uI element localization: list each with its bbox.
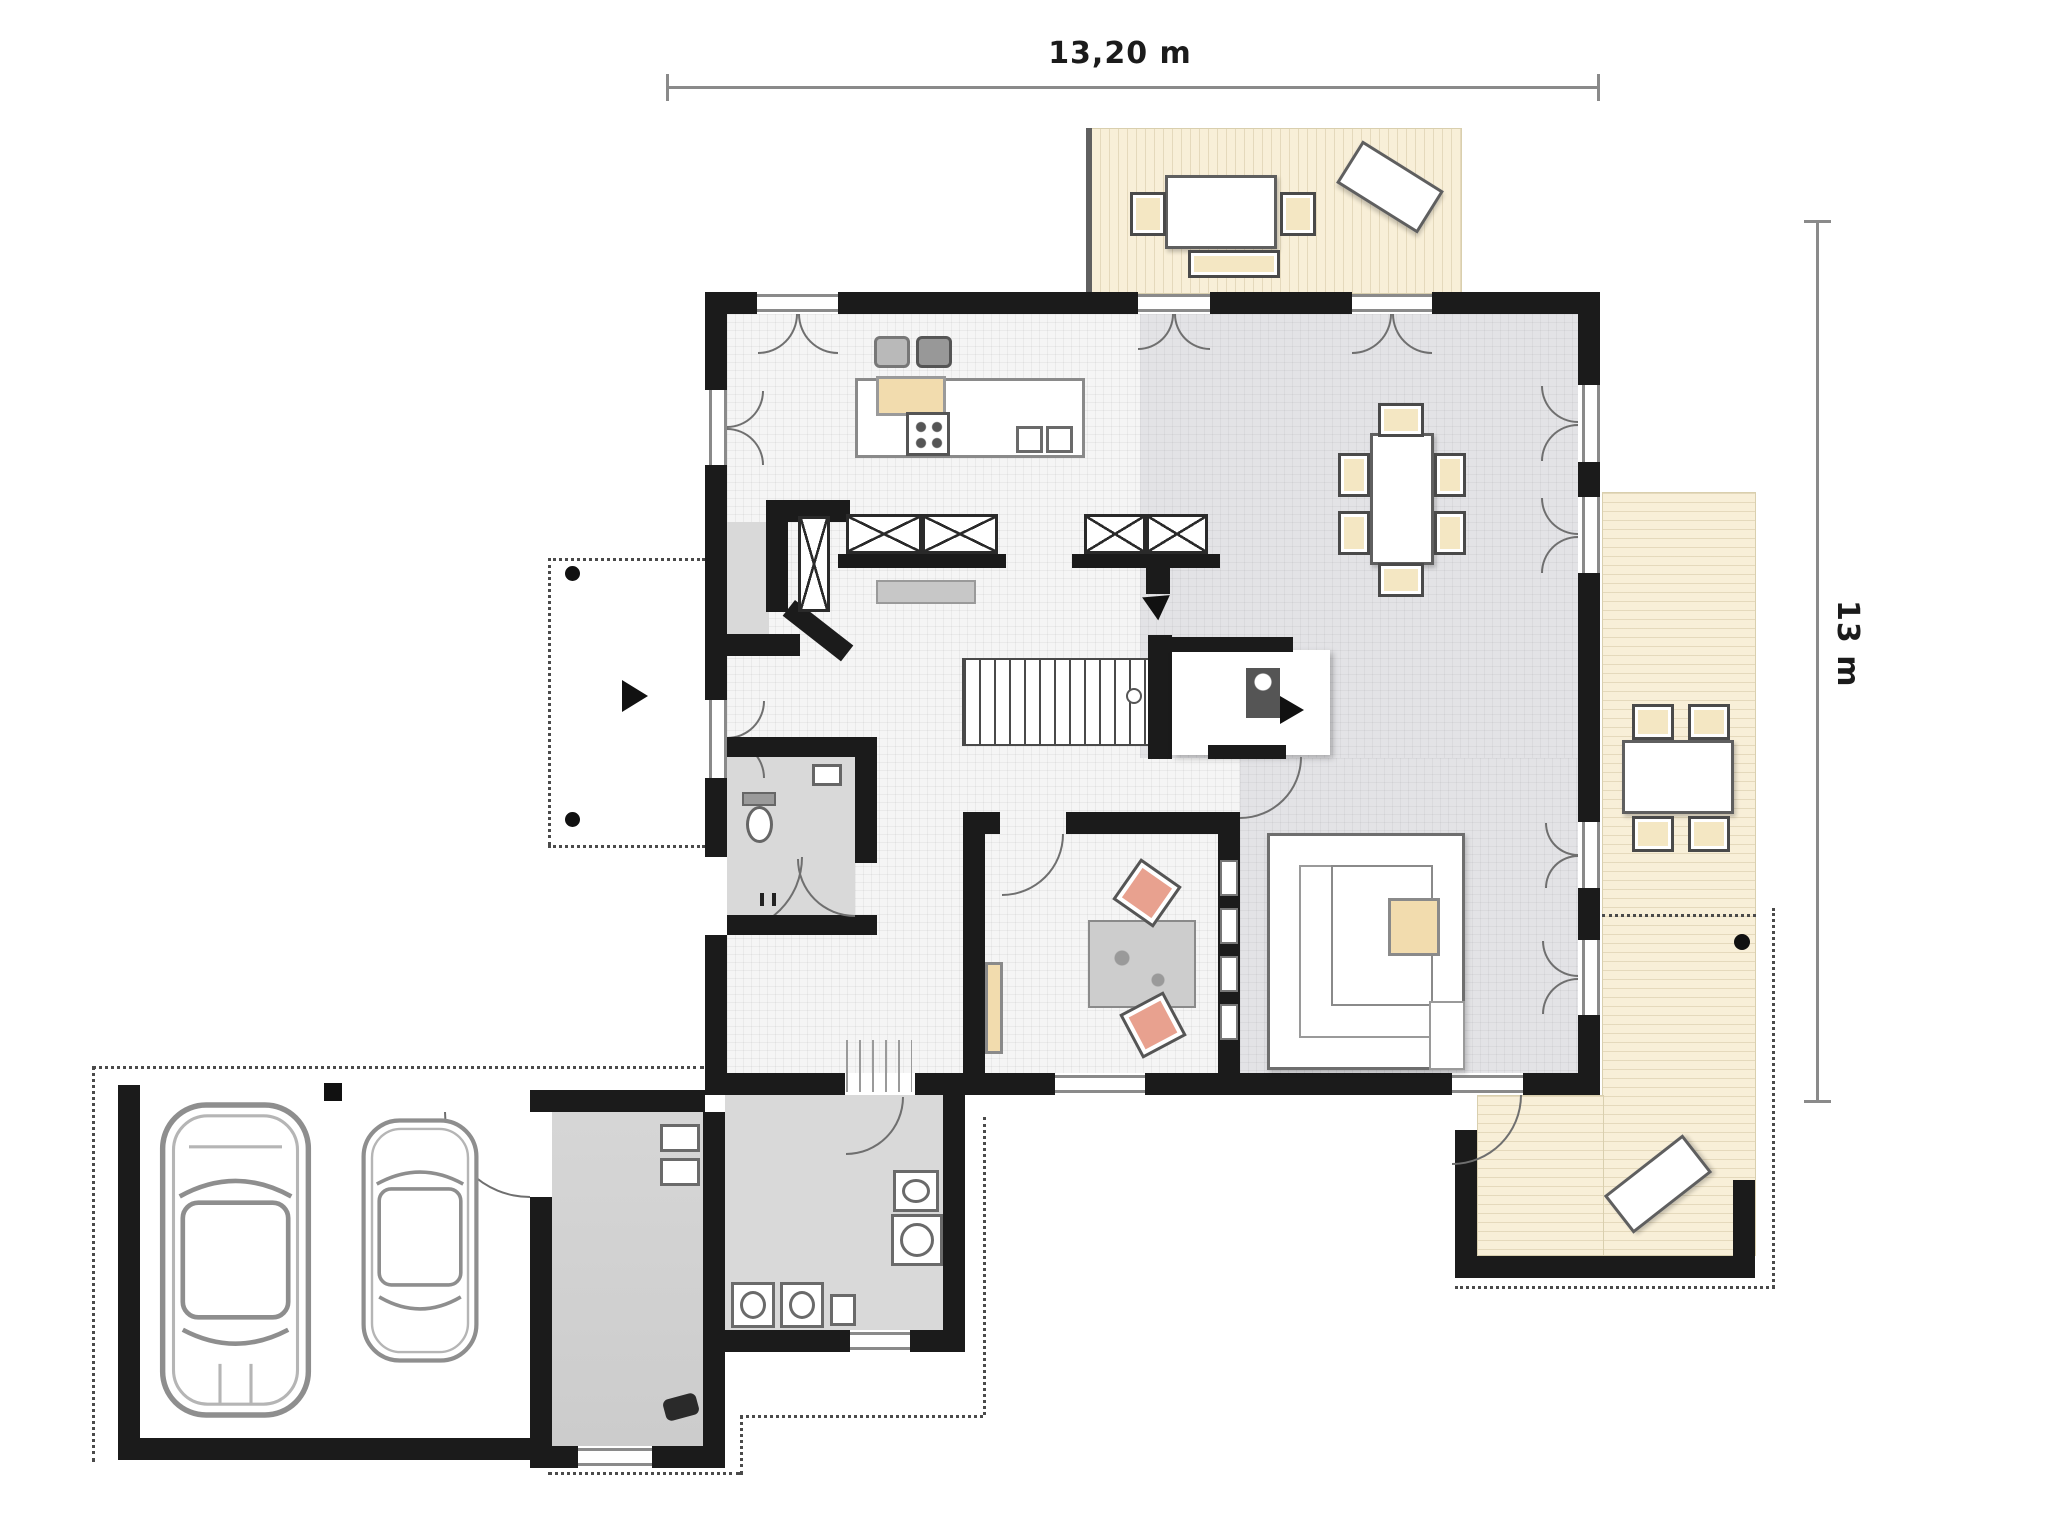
wardrobe-x (922, 514, 998, 554)
wall-bottom (915, 1073, 1055, 1095)
sink-basin (1016, 426, 1043, 453)
car (158, 1100, 313, 1420)
hall-wall (838, 554, 1006, 568)
wall-bottom (1523, 1073, 1600, 1095)
coffee-table (1388, 898, 1440, 956)
study-wall-left (963, 812, 985, 1073)
wall-right (1578, 292, 1600, 385)
radiator-icon (760, 893, 776, 906)
shelf (1220, 860, 1238, 896)
toilet-tank (742, 792, 776, 806)
right-dimension-tick-top (1804, 220, 1831, 223)
utility-wall-right (943, 1095, 965, 1352)
roof-outline (740, 1415, 983, 1418)
carport-boundary-left (92, 1066, 95, 1462)
garden-table (1165, 175, 1277, 249)
window-north-kitchen (757, 294, 838, 312)
sink-basin (1046, 426, 1073, 453)
top-dimension-tick-left (666, 74, 669, 101)
wing-wall-top (530, 1090, 705, 1112)
wall-top (1432, 292, 1600, 314)
wall-left (705, 935, 727, 1095)
floor-plan: 13,20 m 13 m (0, 0, 2048, 1531)
garden-chair (1688, 816, 1730, 852)
wardrobe-x (798, 516, 830, 612)
toilet-bowl (746, 806, 773, 843)
wall-right (1578, 888, 1600, 940)
porch-column (565, 812, 580, 827)
pantry-wall-bottom (705, 634, 800, 656)
oven-icon (916, 336, 952, 368)
pantry-floor (727, 522, 769, 634)
door-north-1 (1138, 294, 1210, 312)
fireplace-wall-top (1163, 637, 1293, 652)
wall-left (705, 292, 727, 390)
carport-column (324, 1083, 342, 1101)
entrance-arrow-icon (622, 680, 648, 712)
garden-chair (1280, 192, 1316, 236)
garden-chair (1632, 816, 1674, 852)
window-east-living (1582, 940, 1600, 1015)
window-east-dining (1582, 497, 1600, 573)
dining-chair (1378, 563, 1424, 597)
carport-wall-left (118, 1085, 140, 1460)
dining-chair (1434, 453, 1466, 497)
terrace-wall-bottom (1455, 1256, 1755, 1278)
garden-table (1622, 740, 1734, 814)
shelf (1220, 956, 1238, 992)
window-west-kitchen (709, 390, 727, 465)
garden-chair (1632, 704, 1674, 740)
wall-top (1210, 292, 1352, 314)
dining-chair (1378, 403, 1424, 437)
porch-column (565, 566, 580, 581)
shelf (1220, 908, 1238, 944)
garden-bench (1188, 250, 1280, 278)
wardrobe-x (1146, 514, 1208, 554)
wall-top (838, 292, 1138, 314)
bathroom-wall-bottom (727, 915, 877, 935)
wall-left (705, 778, 727, 857)
carport-boundary-top (92, 1066, 704, 1069)
car (360, 1108, 480, 1373)
stair-newel (1126, 688, 1142, 704)
right-dimension-tick-bottom (1804, 1100, 1831, 1103)
wall-bottom (705, 1073, 845, 1095)
shelf (1220, 1004, 1238, 1040)
window-mudroom (578, 1448, 652, 1466)
boiler-icon (893, 1170, 939, 1212)
north-terrace-edge (1086, 128, 1092, 292)
plot-boundary-right (1772, 908, 1775, 1288)
window-west-hall (709, 700, 727, 778)
washbasin (812, 764, 842, 786)
wardrobe-x (1084, 514, 1146, 554)
study-wall-top (1066, 812, 1240, 834)
right-dimension-line (1816, 222, 1819, 1102)
mudroom-wall-left (530, 1197, 552, 1468)
terrace-column (1734, 934, 1750, 950)
roof-outline (548, 1472, 740, 1475)
garden-chair (1130, 192, 1166, 236)
right-dimension-label: 13 m (1830, 600, 1865, 687)
terrace-wall-right (1733, 1180, 1755, 1278)
dining-table (1370, 433, 1434, 565)
roof-outline (983, 1117, 986, 1415)
plot-boundary-bottom (1455, 1286, 1775, 1289)
wardrobe-x (846, 514, 922, 554)
washer-icon (731, 1282, 775, 1328)
wall-right (1578, 573, 1600, 822)
carport-wall-bottom (118, 1438, 530, 1460)
top-dimension-line (668, 86, 1600, 89)
pantry-wall-side (766, 500, 788, 612)
utility-wall-bottom (703, 1330, 850, 1352)
bathroom-wall-right (855, 737, 877, 863)
top-dimension-tick-right (1597, 74, 1600, 101)
utility-cabinet (830, 1294, 856, 1326)
stove-icon (906, 412, 950, 456)
window-south-study (1055, 1075, 1145, 1093)
steps-down (846, 1040, 912, 1092)
refrigerator-icon (874, 336, 910, 368)
wall-right (1578, 462, 1600, 497)
boiler-icon (891, 1214, 943, 1266)
bench (985, 962, 1003, 1054)
washer-icon (780, 1282, 824, 1328)
mudroom-cabinet (660, 1124, 700, 1152)
porch-boundary-left (548, 558, 551, 845)
fireplace-arrow-icon (1280, 696, 1304, 724)
desk (1088, 920, 1196, 1008)
wall-bottom (1145, 1073, 1452, 1095)
mudroom-wall-right (703, 1112, 725, 1468)
dining-chair (1338, 453, 1370, 497)
garden-chair (1688, 704, 1730, 740)
mudroom-wall-bottom (530, 1446, 578, 1468)
window-east-living (1582, 822, 1600, 888)
mudroom-cabinet (660, 1158, 700, 1186)
doormat (876, 580, 976, 604)
cutting-board (876, 376, 946, 416)
door-south-terrace (1452, 1075, 1523, 1093)
dining-chair (1338, 511, 1370, 555)
sofa-chaise (1429, 1001, 1465, 1070)
chimney-wall (1148, 635, 1172, 759)
dining-chair (1434, 511, 1466, 555)
roof-outline (740, 1415, 743, 1475)
porch-boundary-top (548, 558, 705, 561)
window-east-dining (1582, 385, 1600, 462)
fireplace-stove (1246, 668, 1280, 718)
terrace-step-line (1602, 914, 1756, 917)
porch-boundary-bottom (548, 845, 705, 848)
door-north-terrace (1352, 294, 1432, 312)
window-utility (850, 1332, 910, 1350)
wall-left (705, 465, 727, 700)
top-dimension-label: 13,20 m (1000, 36, 1240, 71)
